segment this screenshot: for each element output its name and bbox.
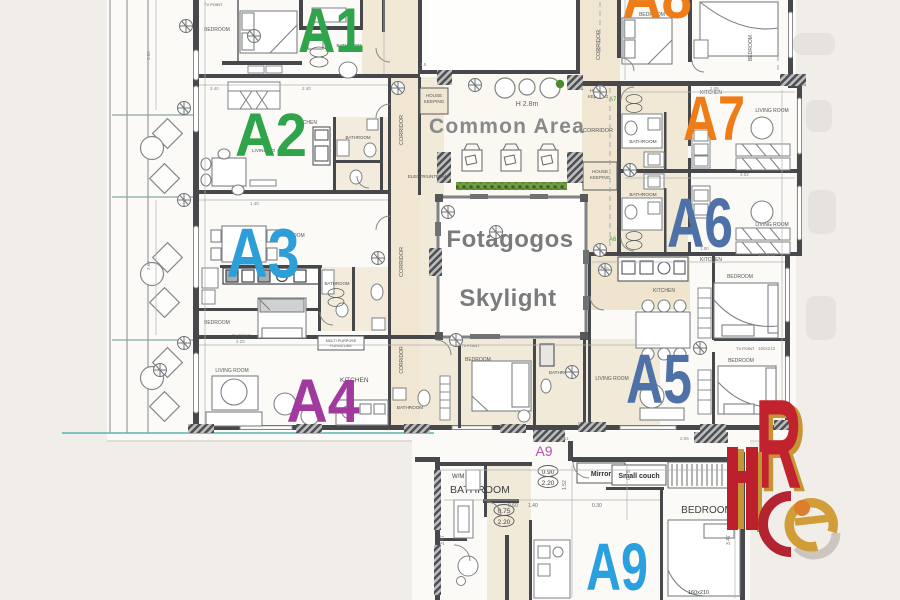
svg-text:CORRIDOR: CORRIDOR (399, 346, 405, 374)
svg-text:Small couch: Small couch (618, 473, 659, 480)
svg-text:BATHROOM: BATHROOM (629, 192, 656, 198)
svg-text:MULTI PURPOSE: MULTI PURPOSE (326, 339, 357, 343)
svg-text:TV POINT: TV POINT (736, 346, 755, 351)
svg-text:2.61: 2.61 (560, 436, 569, 441)
svg-text:A3: A3 (227, 214, 300, 292)
svg-text:Skylight: Skylight (459, 285, 556, 312)
svg-text:FURNITURE: FURNITURE (330, 344, 352, 348)
svg-text:0.60: 0.60 (508, 503, 518, 509)
svg-text:LIVING ROOM: LIVING ROOM (755, 108, 788, 114)
svg-text:HOUSE: HOUSE (592, 169, 608, 174)
svg-text:W/M: W/M (452, 474, 464, 480)
svg-text:BEDROOM: BEDROOM (727, 274, 753, 280)
svg-text:A9: A9 (535, 443, 552, 459)
svg-text:3.65: 3.65 (146, 261, 151, 270)
svg-text:KEEPING: KEEPING (424, 99, 445, 104)
svg-text:CORRIDOR: CORRIDOR (583, 128, 613, 134)
svg-text:1.52: 1.52 (562, 480, 568, 490)
svg-text:2.20: 2.20 (236, 339, 245, 344)
svg-text:3.47: 3.47 (726, 535, 732, 545)
svg-text:2.05: 2.05 (710, 86, 719, 91)
svg-text:160x210: 160x210 (688, 590, 709, 596)
svg-text:BATHROOM: BATHROOM (345, 135, 370, 140)
svg-text:A5: A5 (626, 340, 692, 418)
svg-text:3.47: 3.47 (440, 535, 446, 545)
svg-text:ELECTR/UNTERM: ELECTR/UNTERM (408, 174, 447, 179)
svg-text:BATHROOM: BATHROOM (397, 405, 423, 410)
svg-text:1.5: 1.5 (420, 62, 427, 67)
svg-text:Fotagogos: Fotagogos (446, 226, 573, 253)
svg-text:160x212: 160x212 (758, 252, 776, 257)
svg-text:BEDROOM: BEDROOM (465, 357, 491, 363)
svg-text:BATHROOM: BATHROOM (629, 139, 656, 145)
svg-text:H 2.8m: H 2.8m (516, 101, 539, 108)
svg-text:TV POINT: TV POINT (204, 2, 223, 7)
svg-text:TV POINT: TV POINT (232, 333, 251, 338)
svg-text:3.65: 3.65 (146, 51, 151, 60)
svg-text:2.20: 2.20 (498, 519, 511, 526)
svg-text:A8: A8 (622, 0, 692, 32)
svg-text:BEDROOM: BEDROOM (204, 320, 230, 326)
svg-text:0.30: 0.30 (592, 503, 602, 509)
svg-text:2.46: 2.46 (600, 266, 609, 271)
svg-text:BEDROOM: BEDROOM (728, 358, 754, 364)
svg-text:A7: A7 (683, 84, 745, 154)
svg-text:160x212: 160x212 (758, 346, 776, 351)
svg-text:BATHROOM: BATHROOM (324, 281, 349, 286)
svg-text:BEDROOM: BEDROOM (204, 27, 230, 33)
svg-text:BEDROOM: BEDROOM (748, 35, 754, 61)
svg-text:3.40: 3.40 (210, 86, 219, 91)
svg-text:2.05: 2.05 (680, 436, 689, 441)
svg-text:A1: A1 (298, 0, 364, 66)
svg-text:Mirror: Mirror (591, 471, 612, 478)
svg-text:TV POINT: TV POINT (461, 343, 480, 348)
svg-text:2.20: 2.20 (542, 480, 555, 487)
svg-text:A9: A9 (586, 530, 648, 600)
svg-text:LIVING ROOM: LIVING ROOM (595, 376, 628, 382)
svg-text:1.40: 1.40 (528, 503, 538, 509)
svg-text:Common Area: Common Area (429, 115, 585, 138)
svg-text:2.40: 2.40 (302, 86, 311, 91)
svg-text:KEEPING: KEEPING (590, 175, 611, 180)
svg-text:1.40: 1.40 (250, 201, 259, 206)
svg-text:CORRIDOR: CORRIDOR (399, 247, 405, 277)
svg-text:3.02: 3.02 (740, 172, 749, 177)
svg-text:HOUSE: HOUSE (426, 93, 442, 98)
svg-text:1.80: 1.80 (700, 246, 709, 251)
svg-text:BEDROOM: BEDROOM (681, 505, 733, 516)
svg-text:CORRIDOR: CORRIDOR (399, 115, 405, 145)
svg-text:LIVING ROOM: LIVING ROOM (215, 368, 248, 374)
svg-text:A2: A2 (235, 101, 307, 169)
svg-text:KITCHEN: KITCHEN (653, 288, 675, 294)
svg-text:CORRIDOR: CORRIDOR (596, 30, 602, 60)
